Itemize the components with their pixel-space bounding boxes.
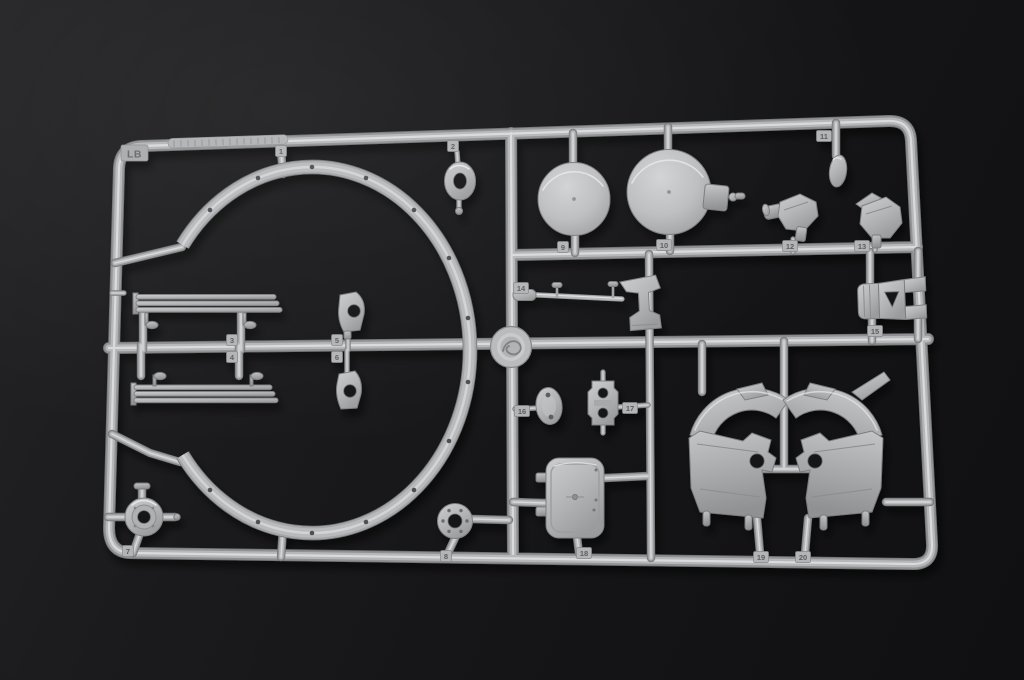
part-number-tag-11: 11 xyxy=(817,131,832,142)
svg-text:5: 5 xyxy=(335,336,339,345)
part-5-gusset-plate xyxy=(339,292,365,339)
part-11-oval-pad xyxy=(828,154,849,188)
part-12-mount-bracket xyxy=(761,194,818,242)
svg-text:18: 18 xyxy=(580,549,588,558)
svg-text:1: 1 xyxy=(279,147,283,156)
part-number-tag-12: 12 xyxy=(783,241,798,252)
part-pedestal-bracket xyxy=(620,275,663,331)
part-number-tag-13: 13 xyxy=(855,241,870,252)
part-number-tag-15: 15 xyxy=(868,326,883,337)
sprue: LB 1234567891011121314151617181920 xyxy=(108,121,932,564)
part-18-hatch-door xyxy=(536,458,604,538)
part-10-disc-with-hinge xyxy=(627,150,745,235)
svg-text:7: 7 xyxy=(126,547,130,556)
part-8-bolt-ring xyxy=(438,504,473,539)
svg-text:13: 13 xyxy=(858,242,866,251)
part-3-triple-bar-rail xyxy=(133,293,282,329)
part-6-gusset-plate xyxy=(337,371,362,409)
svg-text:14: 14 xyxy=(517,284,526,293)
part-number-tag-1: 1 xyxy=(276,146,287,157)
part-number-tag-9: 9 xyxy=(558,242,569,253)
part-4-triple-bar-rail xyxy=(131,372,278,405)
svg-text:2: 2 xyxy=(451,142,455,151)
part-number-tag-8: 8 xyxy=(441,551,452,562)
part-number-tag-19: 19 xyxy=(754,552,769,563)
part-number-tag-7: 7 xyxy=(123,546,134,557)
part-number-tag-10: 10 xyxy=(657,240,672,251)
svg-text:6: 6 xyxy=(335,353,339,362)
part-number-tag-18: 18 xyxy=(577,548,592,559)
part-number-tag-20: 20 xyxy=(796,552,811,563)
svg-text:19: 19 xyxy=(757,553,765,562)
part-20-cradle-bracket xyxy=(783,372,890,530)
part-14-rod xyxy=(513,282,622,301)
part-number-tag-3: 3 xyxy=(227,335,238,346)
svg-text:11: 11 xyxy=(820,132,828,141)
svg-text:8: 8 xyxy=(444,552,448,561)
svg-text:16: 16 xyxy=(518,407,526,416)
part-number-tag-17: 17 xyxy=(623,403,638,414)
part-number-tag-2: 2 xyxy=(448,141,459,152)
svg-text:10: 10 xyxy=(660,241,668,250)
sprue-letter-tag: LB xyxy=(121,145,148,161)
part-7-wheel-hub xyxy=(125,483,180,536)
svg-text:17: 17 xyxy=(626,404,634,413)
brand-medallion-icon xyxy=(491,327,532,368)
part-number-tag-6: 6 xyxy=(332,352,343,363)
part-number-tag-16: 16 xyxy=(515,406,530,417)
svg-text:3: 3 xyxy=(230,336,234,345)
part-9-disc xyxy=(538,163,610,236)
part-19-cradle-bracket xyxy=(689,383,789,530)
part-number-tag-5: 5 xyxy=(332,335,343,346)
part-number-tag-4: 4 xyxy=(227,352,238,363)
sprue-photo: LB 1234567891011121314151617181920 xyxy=(0,0,1024,680)
svg-text:20: 20 xyxy=(799,553,807,562)
part-13-mount-bracket xyxy=(856,193,902,248)
svg-text:15: 15 xyxy=(871,327,879,336)
part-17-h-bracket xyxy=(588,381,618,425)
part-16-oval-plate xyxy=(534,386,564,426)
svg-text:12: 12 xyxy=(786,242,794,251)
sprue-letter-label: LB xyxy=(127,149,142,161)
sprue-illustration: LB 1234567891011121314151617181920 xyxy=(0,0,1024,680)
svg-text:9: 9 xyxy=(561,243,565,252)
part-number-tag-14: 14 xyxy=(514,283,529,294)
